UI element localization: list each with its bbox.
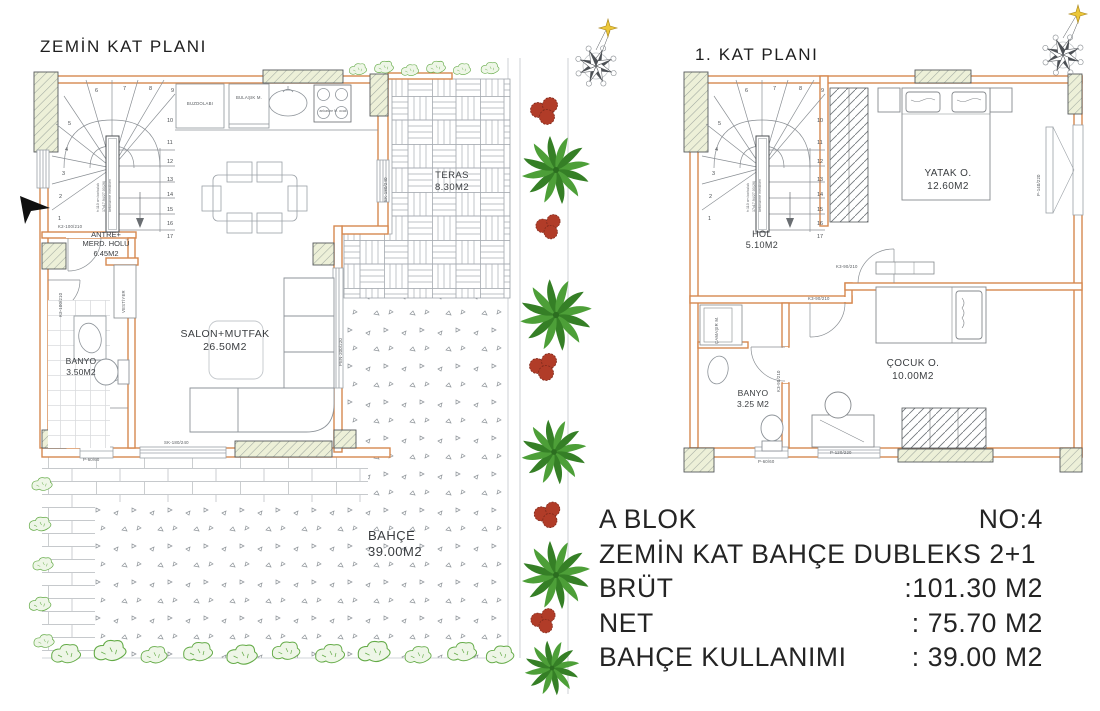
- room-bahce-area: 39.00M2: [368, 544, 422, 560]
- unit-type: ZEMİN KAT BAHÇE DUBLEKS 2+1: [599, 537, 1043, 572]
- right-plan-title: 1. KAT PLANI: [695, 44, 818, 65]
- room-antre: ANTRE+ MERD. HOLÜ 6.45M2: [70, 230, 142, 258]
- door-label-antre: K2-100/210: [58, 224, 82, 229]
- stair-note-2-left: 17x17.94/27.03(26): [102, 181, 106, 212]
- stairs-ground: [52, 80, 175, 232]
- window-label-bottom-right: P-120/220: [830, 450, 852, 455]
- block-name: A BLOK: [599, 502, 697, 537]
- stair-note-2-right: 17x17.94/27.03(26): [752, 181, 756, 212]
- room-bahce: BAHÇE 39.00M2: [368, 528, 422, 561]
- room-teras: TERAS 8.30M2: [408, 170, 496, 194]
- stair-note-1-left: h:110 cm korkuluk: [96, 183, 100, 212]
- room-banyo-ground-area: 3.50M2: [52, 367, 110, 378]
- lawn-right: [344, 298, 508, 658]
- stair-number: 16: [817, 221, 823, 227]
- stair-number: 9: [821, 88, 824, 94]
- window-label-salon: PEN-200/220: [338, 338, 343, 366]
- room-banyo-first-name: BANYO: [724, 388, 782, 399]
- info-row-net: NET : 75.70 M2: [599, 606, 1043, 641]
- room-bahce-name: BAHÇE: [368, 528, 422, 544]
- kitchen: [175, 84, 378, 130]
- stair-note-3-right: betonarme merdiven: [758, 179, 762, 212]
- stove-label: ankastre M. ocak: [311, 109, 355, 113]
- room-banyo-first-area: 3.25 M2: [724, 399, 782, 410]
- dresser: [876, 262, 934, 274]
- room-salon: SALON+MUTFAK 26.50M2: [178, 328, 272, 354]
- room-cocuk-name: ÇOCUK O.: [868, 358, 958, 371]
- room-cocuk: ÇOCUK O. 10.00M2: [868, 358, 958, 383]
- stair-number: 15: [167, 207, 173, 213]
- lawn-left: [95, 502, 345, 658]
- room-teras-name: TERAS: [408, 170, 496, 182]
- stair-number: 3: [62, 171, 65, 177]
- door-label-banyo: K3-90/210: [776, 370, 781, 392]
- room-antre-line1: ANTRE+: [70, 230, 142, 239]
- stair-number: 16: [167, 221, 173, 227]
- stair-number: 7: [123, 86, 126, 92]
- compass-rose-right: [1035, 5, 1091, 83]
- room-cocuk-area: 10.00M2: [868, 371, 958, 384]
- stair-note-1-right: h:110 cm korkuluk: [746, 183, 750, 212]
- left-plan-group: [20, 19, 624, 695]
- window-label-small-right: P-60/60: [758, 459, 774, 464]
- window-label-kitchen: SK-180/240: [383, 177, 388, 202]
- door-label-yatak: K3-90/210: [836, 264, 858, 269]
- info-row-brut: BRÜT :101.30 M2: [599, 571, 1043, 606]
- window-label-bottom: SK-180/240: [164, 440, 189, 445]
- room-hol-name: HOL: [734, 229, 790, 240]
- stair-number: 4: [715, 147, 718, 153]
- stair-note-3-left: betonarme merdiven: [108, 179, 112, 212]
- stair-number: 11: [167, 140, 173, 146]
- stair-number: 13: [167, 177, 173, 183]
- stair-number: 10: [167, 118, 173, 124]
- room-salon-area: 26.50M2: [178, 341, 272, 354]
- washer-label: ÇAMAŞIR M.: [714, 316, 719, 344]
- stair-number: 6: [95, 88, 98, 94]
- desk: [812, 392, 874, 447]
- stair-number: 14: [167, 192, 173, 198]
- room-banyo-ground: BANYO 3.50M2: [52, 356, 110, 377]
- room-antre-area: 6.45M2: [70, 249, 142, 258]
- single-bed: [876, 287, 986, 343]
- stair-number: 14: [817, 192, 823, 198]
- stair-number: 15: [817, 207, 823, 213]
- room-banyo-first: BANYO 3.25 M2: [724, 388, 782, 409]
- stair-number: 10: [817, 118, 823, 124]
- fridge-label: BUZDOLABI: [177, 101, 223, 106]
- brut-label: BRÜT: [599, 571, 674, 606]
- stair-number: 9: [171, 88, 174, 94]
- room-salon-name: SALON+MUTFAK: [178, 328, 272, 341]
- room-hol: HOL 5.10M2: [734, 229, 790, 252]
- stairs-first: [702, 80, 825, 232]
- stair-number: 1: [58, 216, 61, 222]
- stair-number: 12: [817, 159, 823, 165]
- window-label-small: P-60/60: [83, 457, 99, 462]
- stair-number: 6: [745, 88, 748, 94]
- stair-number: 11: [817, 140, 823, 146]
- vestiyer-label: VESTİYER: [121, 290, 126, 313]
- stair-number: 17: [817, 234, 823, 240]
- brut-value: :101.30 M2: [904, 571, 1043, 606]
- stair-number: 5: [68, 121, 71, 127]
- unit-info-block: A BLOK NO:4 ZEMİN KAT BAHÇE DUBLEKS 2+1 …: [599, 502, 1043, 675]
- room-yatak-name: YATAK O.: [904, 168, 992, 181]
- dining-table: [202, 162, 307, 233]
- door-label-left: K2-100/210: [58, 293, 63, 317]
- stair-number: 17: [167, 234, 173, 240]
- room-antre-line2: MERD. HOLÜ: [70, 239, 142, 248]
- info-row-bahce: BAHÇE KULLANIMI : 39.00 M2: [599, 640, 1043, 675]
- room-yatak-area: 12.60M2: [904, 181, 992, 194]
- stair-number: 13: [817, 177, 823, 183]
- stair-number: 7: [773, 86, 776, 92]
- window-label-right: P-140/220: [1036, 174, 1041, 196]
- door-label-cocuk: K3-90/210: [808, 296, 830, 301]
- net-value: : 75.70 M2: [912, 606, 1043, 641]
- room-banyo-ground-name: BANYO: [52, 356, 110, 367]
- room-yatak: YATAK O. 12.60M2: [904, 168, 992, 193]
- left-plan-title: ZEMİN KAT PLANI: [40, 36, 207, 57]
- stair-number: 4: [65, 147, 68, 153]
- unit-number: NO:4: [979, 502, 1043, 537]
- stair-number: 12: [167, 159, 173, 165]
- stair-number: 3: [712, 171, 715, 177]
- stair-number: 1: [708, 216, 711, 222]
- stair-number: 8: [799, 86, 802, 92]
- brick-path-top: [42, 457, 368, 502]
- stair-number: 8: [149, 86, 152, 92]
- stair-number: 5: [718, 121, 721, 127]
- floor-plan-sheet: ZEMİN KAT PLANI TERAS 8.30M2 SALON+MUTFA…: [0, 0, 1100, 711]
- room-hol-area: 5.10M2: [734, 240, 790, 251]
- bahce-value: : 39.00 M2: [912, 640, 1043, 675]
- wardrobe-child: [902, 408, 986, 448]
- dishwasher-label: BULAŞIK M.: [229, 95, 269, 100]
- stair-number: 2: [59, 194, 62, 200]
- room-teras-area: 8.30M2: [408, 182, 496, 194]
- info-row-block: A BLOK NO:4: [599, 502, 1043, 537]
- stair-number: 2: [709, 194, 712, 200]
- bahce-label: BAHÇE KULLANIMI: [599, 640, 847, 675]
- net-label: NET: [599, 606, 654, 641]
- sofa: [190, 278, 334, 432]
- compass-rose-left: [568, 19, 624, 94]
